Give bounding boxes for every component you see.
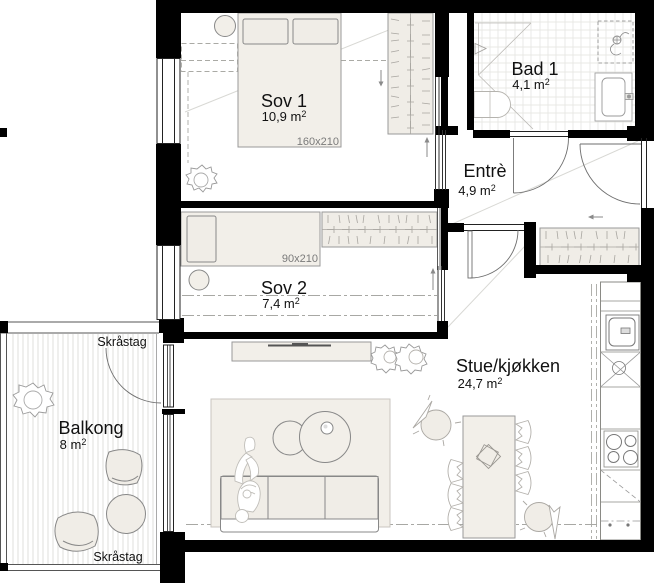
svg-text:24,7 m2: 24,7 m2 <box>458 376 503 391</box>
svg-text:10,9 m2: 10,9 m2 <box>262 109 307 124</box>
svg-text:Bad 1: Bad 1 <box>511 59 558 79</box>
svg-text:Sov 2: Sov 2 <box>261 278 307 298</box>
svg-text:4,9 m2: 4,9 m2 <box>458 183 496 198</box>
svg-text:90x210: 90x210 <box>282 253 318 265</box>
svg-text:Entrè: Entrè <box>463 161 506 181</box>
svg-text:Stue/kjøkken: Stue/kjøkken <box>456 356 560 376</box>
svg-text:160x210: 160x210 <box>297 136 339 148</box>
svg-text:4,1 m2: 4,1 m2 <box>512 77 550 92</box>
svg-text:Sov 1: Sov 1 <box>261 91 307 111</box>
svg-text:Skråstag: Skråstag <box>93 550 142 564</box>
svg-text:7,4 m2: 7,4 m2 <box>262 296 300 311</box>
svg-text:Skråstag: Skråstag <box>97 335 146 349</box>
svg-text:Balkong: Balkong <box>58 418 123 438</box>
